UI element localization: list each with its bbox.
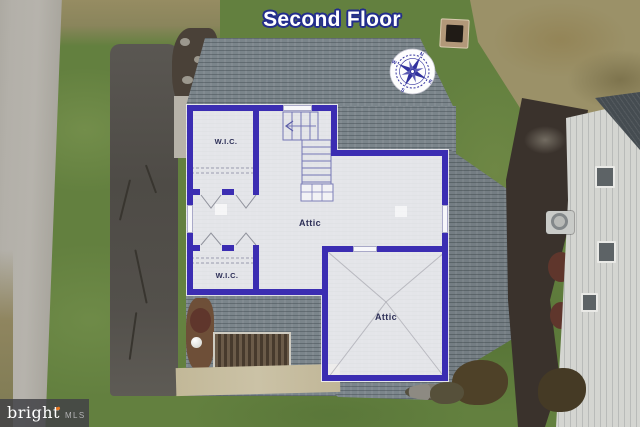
roof-vent [395, 206, 407, 217]
brightmls-logo-suffix: MLS [65, 411, 86, 420]
window-marker-left [187, 205, 193, 233]
attic-access-grid [301, 184, 333, 201]
roof-vent [215, 204, 227, 215]
plan-wall-wic-lower-pier [187, 245, 200, 251]
plan-wall-top [187, 105, 337, 111]
plan-wall-left [187, 105, 193, 295]
room-label-wic-upper: W.I.C. [196, 137, 256, 146]
room-label-attic-main: Attic [280, 218, 340, 228]
plan-wall-wic-lower-right [253, 245, 259, 295]
plan-wall-wic-lower-pier [222, 245, 234, 251]
plan-wall-wic-upper-pier [222, 189, 234, 195]
page-title: Second Floor [182, 8, 482, 32]
door-swings [201, 195, 256, 245]
plan-wall-step-horizontal [331, 150, 448, 156]
plan-wall-right [442, 150, 448, 381]
room-label-wic-lower: W.I.C. [197, 271, 257, 280]
plan-wall-wic-upper-right [253, 105, 259, 195]
plan-wall-wic-upper-pier [187, 189, 200, 195]
floorplan-linework [0, 0, 640, 427]
room-label-attic-secondary: Attic [356, 312, 416, 322]
plan-wall-step-vertical [331, 105, 337, 156]
plan-wall-attic-top [322, 246, 448, 252]
plan-wall-attic-left [322, 246, 328, 381]
plan-wall-bottom-attic [322, 375, 448, 381]
brightmls-watermark: bright MLS [0, 399, 89, 427]
window-marker-attic [353, 246, 377, 252]
stair-opening [283, 105, 312, 111]
window-marker-right [442, 205, 448, 233]
brightmls-logo-text: bright [7, 405, 60, 421]
aerial-floorplan-image: N E S W [0, 0, 640, 427]
